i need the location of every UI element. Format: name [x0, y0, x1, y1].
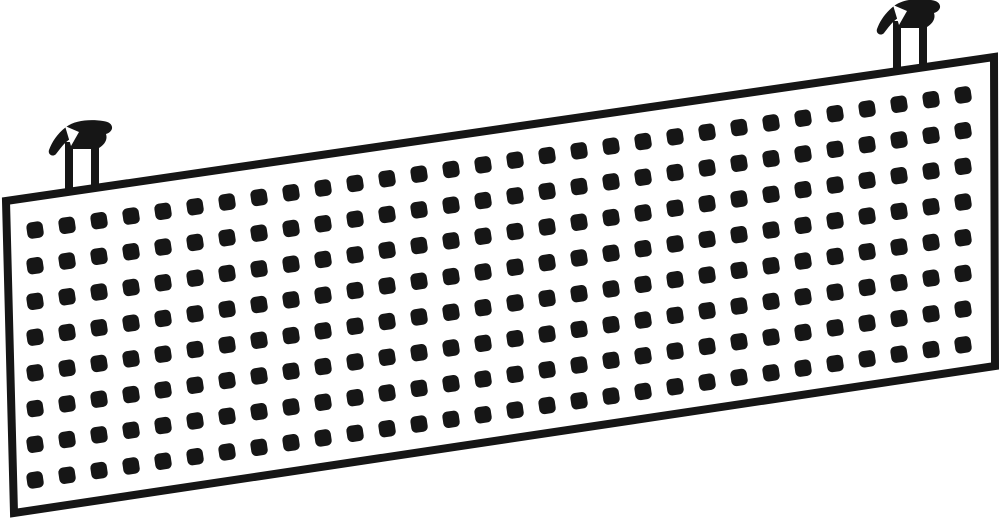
perforation-hole [730, 261, 749, 280]
perforation-hole [154, 202, 173, 221]
perforation-hole [858, 100, 877, 119]
perforation-hole [666, 163, 685, 182]
perforation-hole [922, 269, 941, 288]
perforation-hole [954, 86, 973, 105]
perforation-hole [154, 380, 173, 399]
perforation-hole [442, 339, 461, 358]
perforation-hole [90, 461, 109, 480]
perforation-hole [218, 300, 237, 319]
perforation-hole [154, 238, 173, 257]
perforation-hole [794, 252, 813, 271]
perforation-hole [570, 141, 589, 160]
perforation-hole [954, 335, 973, 354]
perforation-hole [538, 146, 557, 165]
perforation-hole [922, 126, 941, 145]
perforation-hole [890, 202, 909, 221]
perforation-hole [698, 301, 717, 320]
perforation-hole [378, 169, 397, 188]
perforation-hole [634, 204, 653, 223]
perforation-hole [538, 253, 557, 272]
perforation-hole [186, 304, 205, 323]
perforation-hole [666, 342, 685, 361]
perforation-hole [474, 405, 493, 424]
perforation-hole [826, 211, 845, 230]
perforation-hole [410, 165, 429, 184]
perforation-hole [282, 326, 301, 345]
perforation-hole [58, 323, 77, 342]
perforation-hole [762, 292, 781, 311]
perforation-hole [378, 348, 397, 367]
perforation-hole [442, 267, 461, 286]
perforation-hole [666, 377, 685, 396]
perforation-hole [378, 241, 397, 260]
perforation-hole [218, 193, 237, 212]
perforation-hole [506, 294, 525, 313]
perforation-hole [794, 359, 813, 378]
perforation-hole [570, 356, 589, 375]
perforation-hole [602, 351, 621, 370]
perforation-hole [634, 346, 653, 365]
perforation-hole [954, 157, 973, 176]
perforation-hole [826, 104, 845, 123]
perforation-hole [250, 367, 269, 386]
perforation-hole [26, 328, 45, 347]
perforation-hole [826, 140, 845, 159]
perforation-hole [954, 193, 973, 212]
perforation-hole [282, 433, 301, 452]
perforation-hole [90, 425, 109, 444]
perforation-hole [922, 197, 941, 216]
perforation-hole [602, 387, 621, 406]
perforation-hole [762, 328, 781, 347]
perforation-hole [282, 255, 301, 274]
perforation-hole [474, 370, 493, 389]
perforation-hole [154, 345, 173, 364]
perforation-hole [26, 399, 45, 418]
perforation-hole [602, 137, 621, 156]
perforation-hole [538, 182, 557, 201]
perforation-hole [474, 227, 493, 246]
perforation-hole [666, 270, 685, 289]
perforation-hole [890, 238, 909, 257]
perforation-hole [762, 149, 781, 168]
perforation-hole [570, 320, 589, 339]
perforation-hole [186, 197, 205, 216]
perforation-hole [442, 303, 461, 322]
perforation-hole [186, 412, 205, 431]
perforation-hole [762, 221, 781, 240]
perforation-hole [314, 393, 333, 412]
perforation-hole [890, 309, 909, 328]
perforation-hole [58, 216, 77, 235]
perforation-hole [314, 357, 333, 376]
perforation-hole [282, 219, 301, 238]
perforation-hole [26, 471, 45, 490]
perforation-hole [858, 135, 877, 154]
perforation-hole [602, 244, 621, 263]
perforation-hole [922, 90, 941, 109]
perforation-hole [58, 430, 77, 449]
perforated-panel-illustration [0, 0, 1000, 522]
perforation-hole [506, 222, 525, 241]
perforation-hole [570, 391, 589, 410]
perforation-hole [58, 466, 77, 485]
perforation-hole [122, 421, 141, 440]
perforation-hole [90, 211, 109, 230]
perforation-hole [314, 286, 333, 305]
perforation-hole [922, 340, 941, 359]
perforation-hole [26, 221, 45, 240]
perforation-hole [26, 435, 45, 454]
perforation-hole [346, 388, 365, 407]
perforation-hole [250, 438, 269, 457]
perforation-hole [474, 263, 493, 282]
right-mounting-hook [877, 0, 940, 73]
perforation-hole [698, 337, 717, 356]
perforation-hole [954, 228, 973, 247]
perforation-hole [186, 447, 205, 466]
perforation-hole [506, 151, 525, 170]
perforation-hole [730, 225, 749, 244]
perforation-hole [794, 323, 813, 342]
perforation-hole [218, 335, 237, 354]
perforation-hole [730, 297, 749, 316]
perforation-hole [378, 312, 397, 331]
perforation-hole [122, 457, 141, 476]
perforation-hole [410, 272, 429, 291]
perforation-hole [794, 109, 813, 128]
perforation-hole [730, 118, 749, 137]
perforation-hole [794, 216, 813, 235]
perforation-hole [378, 205, 397, 224]
perforation-hole [858, 242, 877, 261]
perforation-hole [634, 382, 653, 401]
perforation-hole [314, 321, 333, 340]
perforation-hole [90, 390, 109, 409]
perforation-hole [922, 162, 941, 181]
perforation-hole [442, 160, 461, 179]
perforation-hole [122, 278, 141, 297]
perforation-hole [122, 314, 141, 333]
perforation-hole [698, 159, 717, 178]
perforation-hole [890, 95, 909, 114]
perforation-hole [506, 401, 525, 420]
perforation-hole [858, 349, 877, 368]
perforation-hole [634, 239, 653, 258]
perforation-hole [346, 424, 365, 443]
perforation-hole [346, 174, 365, 193]
perforation-hole [762, 114, 781, 133]
perforation-hole [570, 284, 589, 303]
perforation-hole [698, 123, 717, 142]
perforation-hole [410, 308, 429, 327]
perforation-hole [858, 278, 877, 297]
perforation-hole [666, 306, 685, 325]
perforation-hole [442, 231, 461, 250]
perforation-hole [826, 354, 845, 373]
perforation-hole [570, 249, 589, 268]
perforation-hole [218, 407, 237, 426]
perforation-hole [346, 353, 365, 372]
perforation-hole [58, 252, 77, 271]
perforation-hole [602, 208, 621, 227]
diagram-canvas [0, 0, 1000, 522]
perforation-hole [570, 213, 589, 232]
perforation-hole [794, 287, 813, 306]
perforation-hole [858, 207, 877, 226]
perforation-hole [58, 359, 77, 378]
perforation-hole [90, 354, 109, 373]
perforation-hole [890, 131, 909, 150]
perforation-hole [442, 196, 461, 215]
perforation-hole [826, 247, 845, 266]
perforation-hole [90, 247, 109, 266]
perforation-hole [506, 365, 525, 384]
perforation-hole [282, 290, 301, 309]
perforation-hole [250, 295, 269, 314]
perforation-hole [474, 191, 493, 210]
perforation-hole [730, 154, 749, 173]
perforation-hole [890, 166, 909, 185]
perforation-hole [762, 363, 781, 382]
perforation-hole [954, 300, 973, 319]
perforation-hole [538, 289, 557, 308]
perforation-hole [186, 376, 205, 395]
perforation-hole [666, 127, 685, 146]
perforation-hole [826, 318, 845, 337]
perforation-hole [730, 190, 749, 209]
perforation-hole [602, 315, 621, 334]
perforation-hole [538, 396, 557, 415]
perforation-hole [250, 402, 269, 421]
perforation-hole [186, 233, 205, 252]
perforation-hole [922, 304, 941, 323]
perforation-hole [346, 210, 365, 229]
perforation-hole [602, 172, 621, 191]
perforation-hole [26, 363, 45, 382]
perforation-hole [378, 384, 397, 403]
perforation-hole [346, 281, 365, 300]
perforation-hole [666, 199, 685, 218]
perforation-hole [314, 214, 333, 233]
perforation-hole [122, 242, 141, 261]
perforation-hole [794, 180, 813, 199]
perforation-hole [826, 176, 845, 195]
perforation-hole [90, 283, 109, 302]
perforation-hole [58, 287, 77, 306]
perforation-hole [154, 452, 173, 471]
perforation-hole [410, 415, 429, 434]
perforation-hole [410, 236, 429, 255]
perforation-hole [442, 374, 461, 393]
perforation-hole [186, 340, 205, 359]
perforation-hole [410, 200, 429, 219]
perforation-hole [410, 343, 429, 362]
perforation-hole [154, 273, 173, 292]
perforation-hole [570, 177, 589, 196]
perforation-hole [90, 318, 109, 337]
perforation-hole [858, 314, 877, 333]
perforation-hole [826, 283, 845, 302]
perforation-hole [218, 264, 237, 283]
perforation-hole [314, 250, 333, 269]
perforation-hole [218, 228, 237, 247]
perforation-hole [698, 230, 717, 249]
perforation-hole [538, 325, 557, 344]
perforation-hole [442, 410, 461, 429]
perforation-hole [538, 360, 557, 379]
perforation-hole [26, 256, 45, 275]
perforation-hole [474, 334, 493, 353]
perforation-hole [410, 379, 429, 398]
perforation-hole [794, 145, 813, 164]
perforation-hole [698, 194, 717, 213]
perforation-hole [58, 394, 77, 413]
perforation-hole [762, 256, 781, 275]
perforation-hole [730, 368, 749, 387]
perforation-hole [250, 259, 269, 278]
perforation-hole [218, 371, 237, 390]
perforation-hole [698, 373, 717, 392]
perforation-hole [698, 266, 717, 285]
perforation-hole [154, 416, 173, 435]
perforation-hole [890, 273, 909, 292]
perforation-hole [218, 443, 237, 462]
perforation-hole [890, 345, 909, 364]
perforation-hole [122, 349, 141, 368]
perforation-hole [474, 155, 493, 174]
perforation-hole [378, 276, 397, 295]
perforation-hole [314, 429, 333, 448]
perforation-hole [506, 329, 525, 348]
perforation-hole [250, 331, 269, 350]
perforation-hole [666, 235, 685, 254]
perforation-hole [634, 168, 653, 187]
perforation-hole [922, 233, 941, 252]
perforation-hole [634, 275, 653, 294]
perforation-hole [250, 188, 269, 207]
panel-outline [6, 57, 995, 513]
perforation-hole [954, 264, 973, 283]
perforation-hole [282, 362, 301, 381]
perforation-hole [634, 132, 653, 151]
perforation-hole [506, 258, 525, 277]
perforation-hole [122, 385, 141, 404]
perforation-hole [314, 179, 333, 198]
perforation-hole [186, 269, 205, 288]
perforation-hole [538, 218, 557, 237]
perforation-hole [282, 398, 301, 417]
perforation-hole [346, 245, 365, 264]
perforation-hole [954, 121, 973, 140]
perforation-hole [474, 298, 493, 317]
perforation-hole [282, 183, 301, 202]
perforation-hole [730, 332, 749, 351]
perforation-hole [506, 186, 525, 205]
perforation-hole [154, 309, 173, 328]
perforation-hole [762, 185, 781, 204]
perforation-hole [346, 317, 365, 336]
perforation-hole [602, 280, 621, 299]
perforation-hole [858, 171, 877, 190]
perforation-hole [250, 224, 269, 243]
perforation-hole [378, 419, 397, 438]
perforation-hole [634, 311, 653, 330]
perforation-hole [26, 292, 45, 311]
perforation-hole [122, 207, 141, 226]
